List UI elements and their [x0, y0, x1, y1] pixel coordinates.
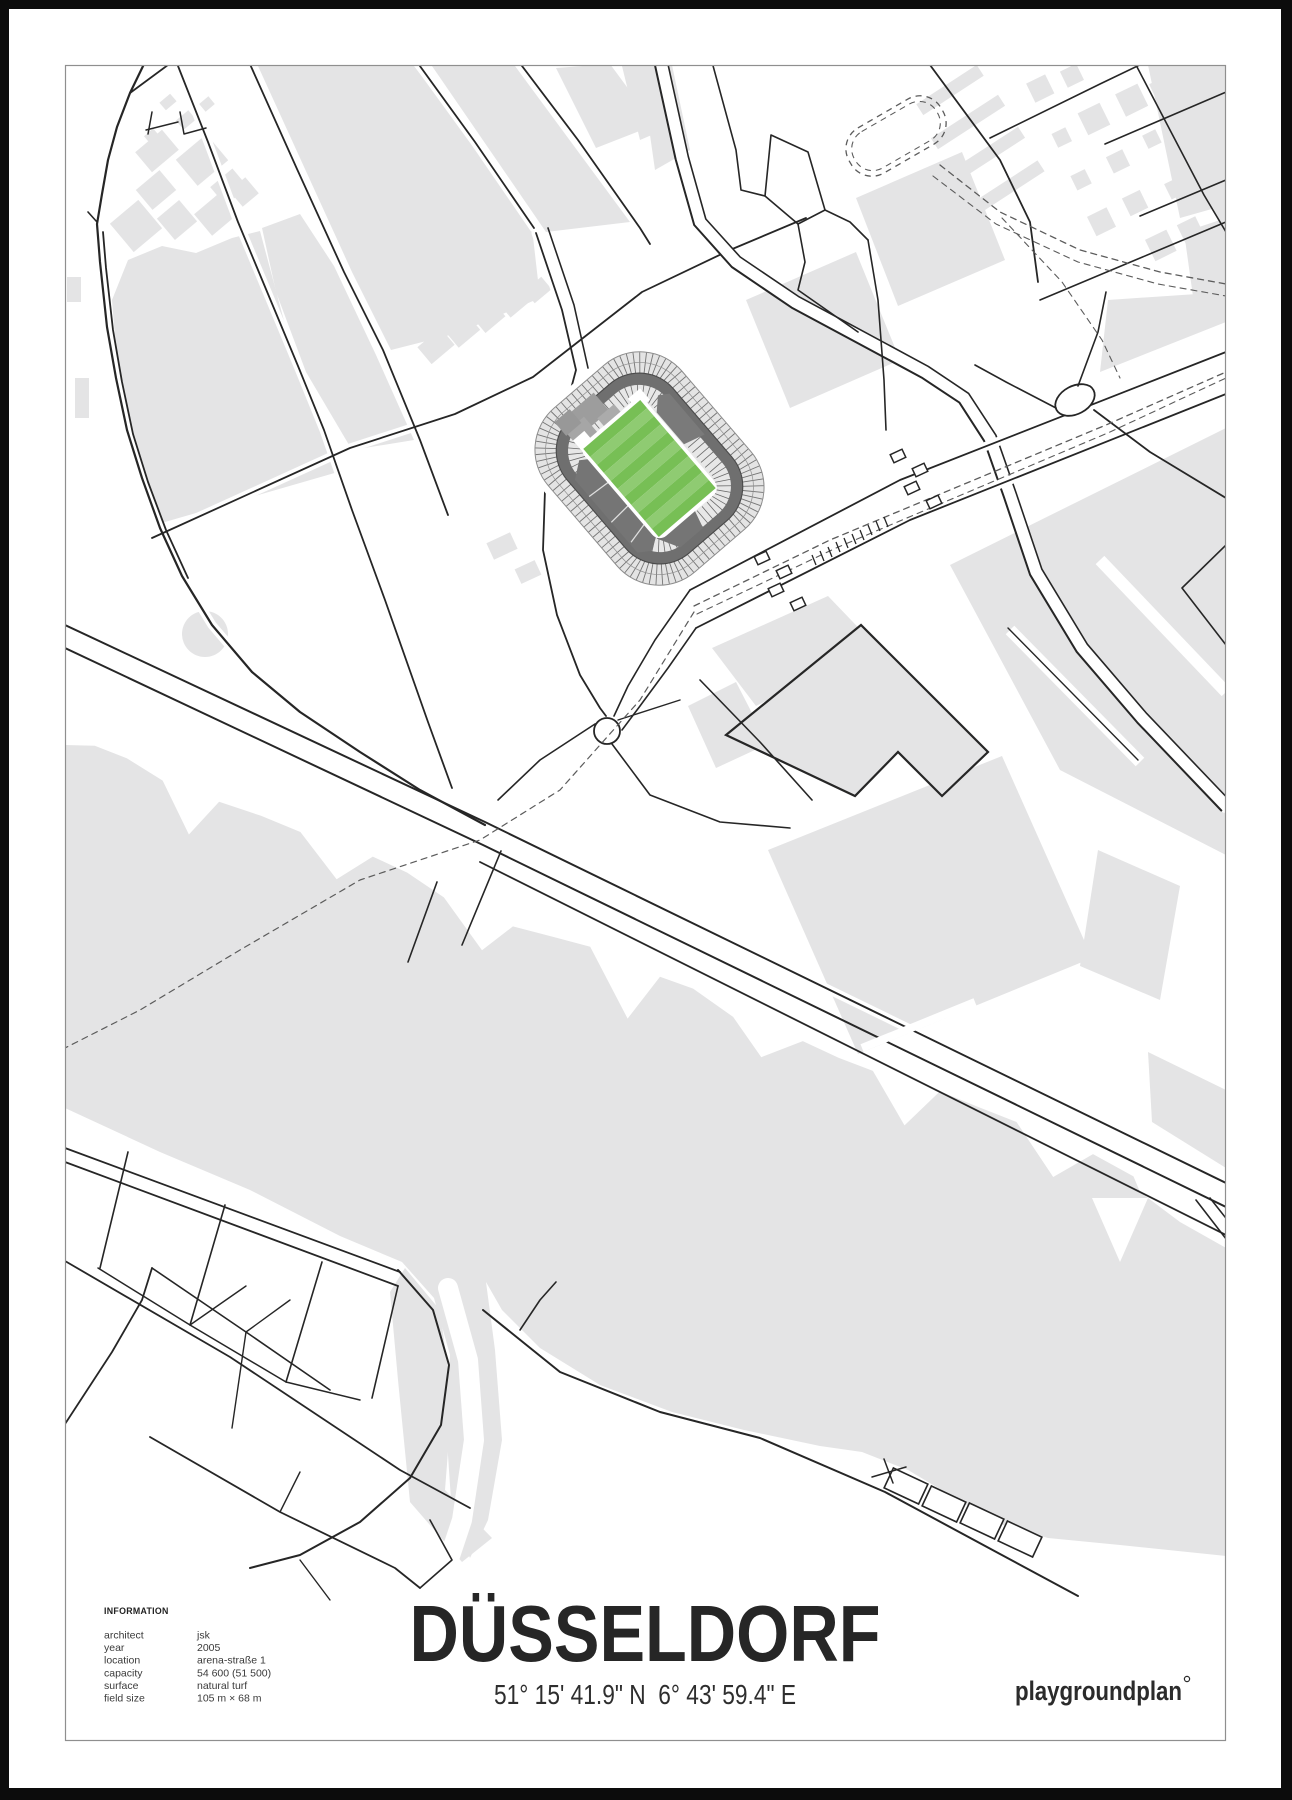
svg-text:architect: architect — [104, 1630, 144, 1642]
svg-text:location: location — [104, 1655, 140, 1667]
svg-text:year: year — [104, 1642, 125, 1654]
svg-text:playgroundplan: playgroundplan — [1015, 1676, 1182, 1706]
svg-text:capacity: capacity — [104, 1667, 143, 1679]
svg-text:INFORMATION: INFORMATION — [104, 1606, 169, 1616]
svg-text:105 m × 68 m: 105 m × 68 m — [197, 1693, 262, 1705]
svg-text:2005: 2005 — [197, 1642, 221, 1654]
svg-text:surface: surface — [104, 1680, 139, 1692]
svg-text:natural turf: natural turf — [197, 1680, 247, 1692]
svg-text:54 600 (51 500): 54 600 (51 500) — [197, 1667, 271, 1679]
svg-text:DÜSSELDORF: DÜSSELDORF — [410, 1589, 881, 1678]
svg-text:jsk: jsk — [196, 1630, 211, 1642]
svg-text:arena-straße 1: arena-straße 1 — [197, 1655, 266, 1667]
svg-text:51° 15' 41.9" N 6° 43' 59.4": 51° 15' 41.9" N 6° 43' 59.4" E — [494, 1679, 796, 1710]
svg-text:field size: field size — [104, 1693, 145, 1705]
